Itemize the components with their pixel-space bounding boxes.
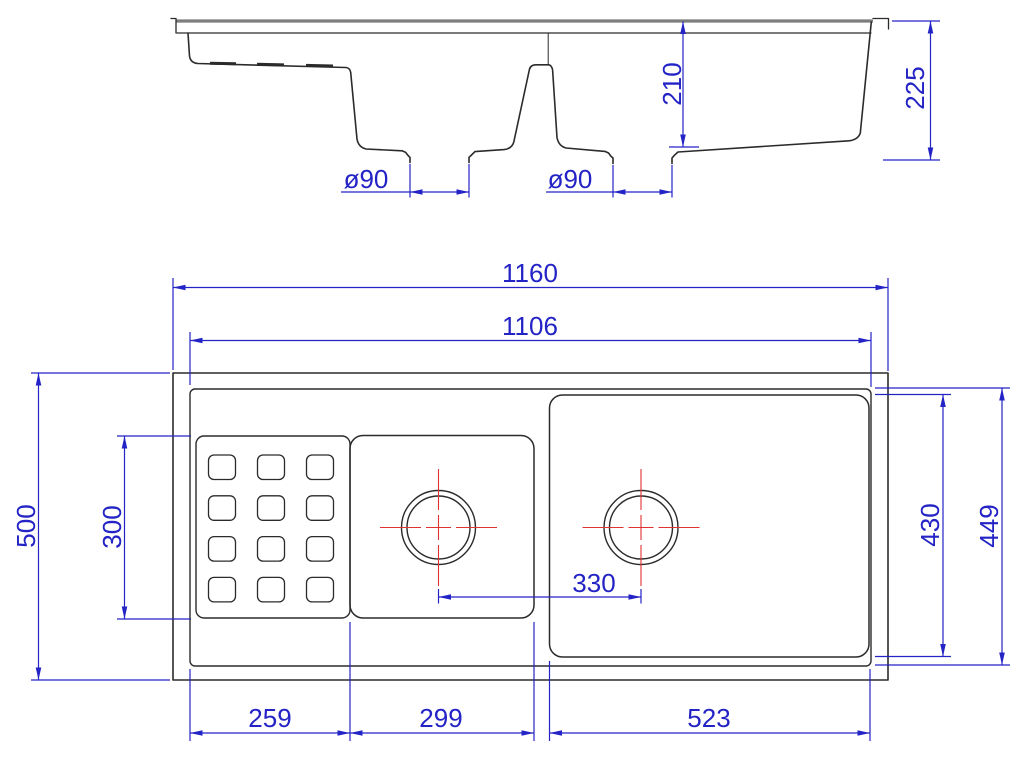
dim-drain-right: ø90: [546, 164, 672, 198]
drainboard-square: [209, 496, 236, 521]
dim-bowl-depth: 210: [657, 22, 699, 148]
drainboard-square: [209, 577, 236, 602]
drainboard-grid: [209, 455, 334, 602]
dim-right-bowl-front: 430: [875, 395, 951, 657]
sink-section-profile: [188, 22, 871, 164]
dim-rim-inner-width-label: 1106: [502, 311, 558, 341]
dim-drainboard-width-label: 259: [248, 703, 291, 733]
rim-left-tab: [171, 19, 176, 34]
drainboard-square: [258, 537, 285, 562]
drainboard-square: [209, 537, 236, 562]
dim-drain-left-label: ø90: [344, 164, 389, 194]
middle-bowl: [350, 436, 534, 619]
middle-bowl-drain: [380, 469, 497, 586]
drainboard-square: [307, 496, 334, 521]
dim-right-bowl-width-label: 523: [687, 703, 730, 733]
drainboard-ribs: [210, 63, 333, 66]
sink-technical-drawing-page: ø90 ø90 210 225: [0, 0, 1021, 757]
drainboard-square: [258, 577, 285, 602]
dim-overall-depth: 225: [883, 21, 940, 160]
dim-drain-spacing-label: 330: [572, 568, 615, 598]
section-view: ø90 ø90 210 225: [171, 19, 940, 198]
drainboard-square: [209, 455, 236, 480]
dim-rim-inner-front-label: 449: [974, 504, 1004, 547]
sink-rim-inner-edge: [190, 389, 871, 666]
dim-overall-width-label: 1160: [502, 258, 558, 288]
dim-rim-inner-width: 1106: [190, 311, 871, 387]
drainboard-square: [258, 455, 285, 480]
right-bowl: [550, 395, 870, 657]
dim-bottom-row: 259 299 523: [190, 622, 870, 741]
dim-drainboard-front: 300: [97, 436, 191, 619]
dim-middle-bowl-width-label: 299: [419, 703, 462, 733]
dim-overall-front: 500: [11, 373, 170, 680]
dim-right-bowl-front-label: 430: [915, 503, 945, 546]
drainboard-recess: [196, 436, 350, 618]
dim-overall-depth-label: 225: [900, 66, 930, 109]
dim-drain-spacing: 330: [439, 568, 642, 604]
plan-view: 1160 1106 500 300 430: [11, 258, 1010, 741]
drainboard-square: [307, 537, 334, 562]
dim-drain-right-label: ø90: [548, 164, 593, 194]
rim-right-tab: [873, 19, 889, 30]
dim-bowl-depth-label: 210: [657, 62, 687, 105]
sink-technical-drawing: ø90 ø90 210 225: [0, 0, 1021, 757]
drainboard-square: [258, 496, 285, 521]
dim-drainboard-front-label: 300: [97, 505, 127, 548]
drainboard-square: [307, 455, 334, 480]
dim-drain-left: ø90: [341, 164, 469, 198]
sink-outer-edge: [173, 373, 888, 680]
drainboard-square: [307, 577, 334, 602]
dim-overall-front-label: 500: [11, 504, 41, 547]
